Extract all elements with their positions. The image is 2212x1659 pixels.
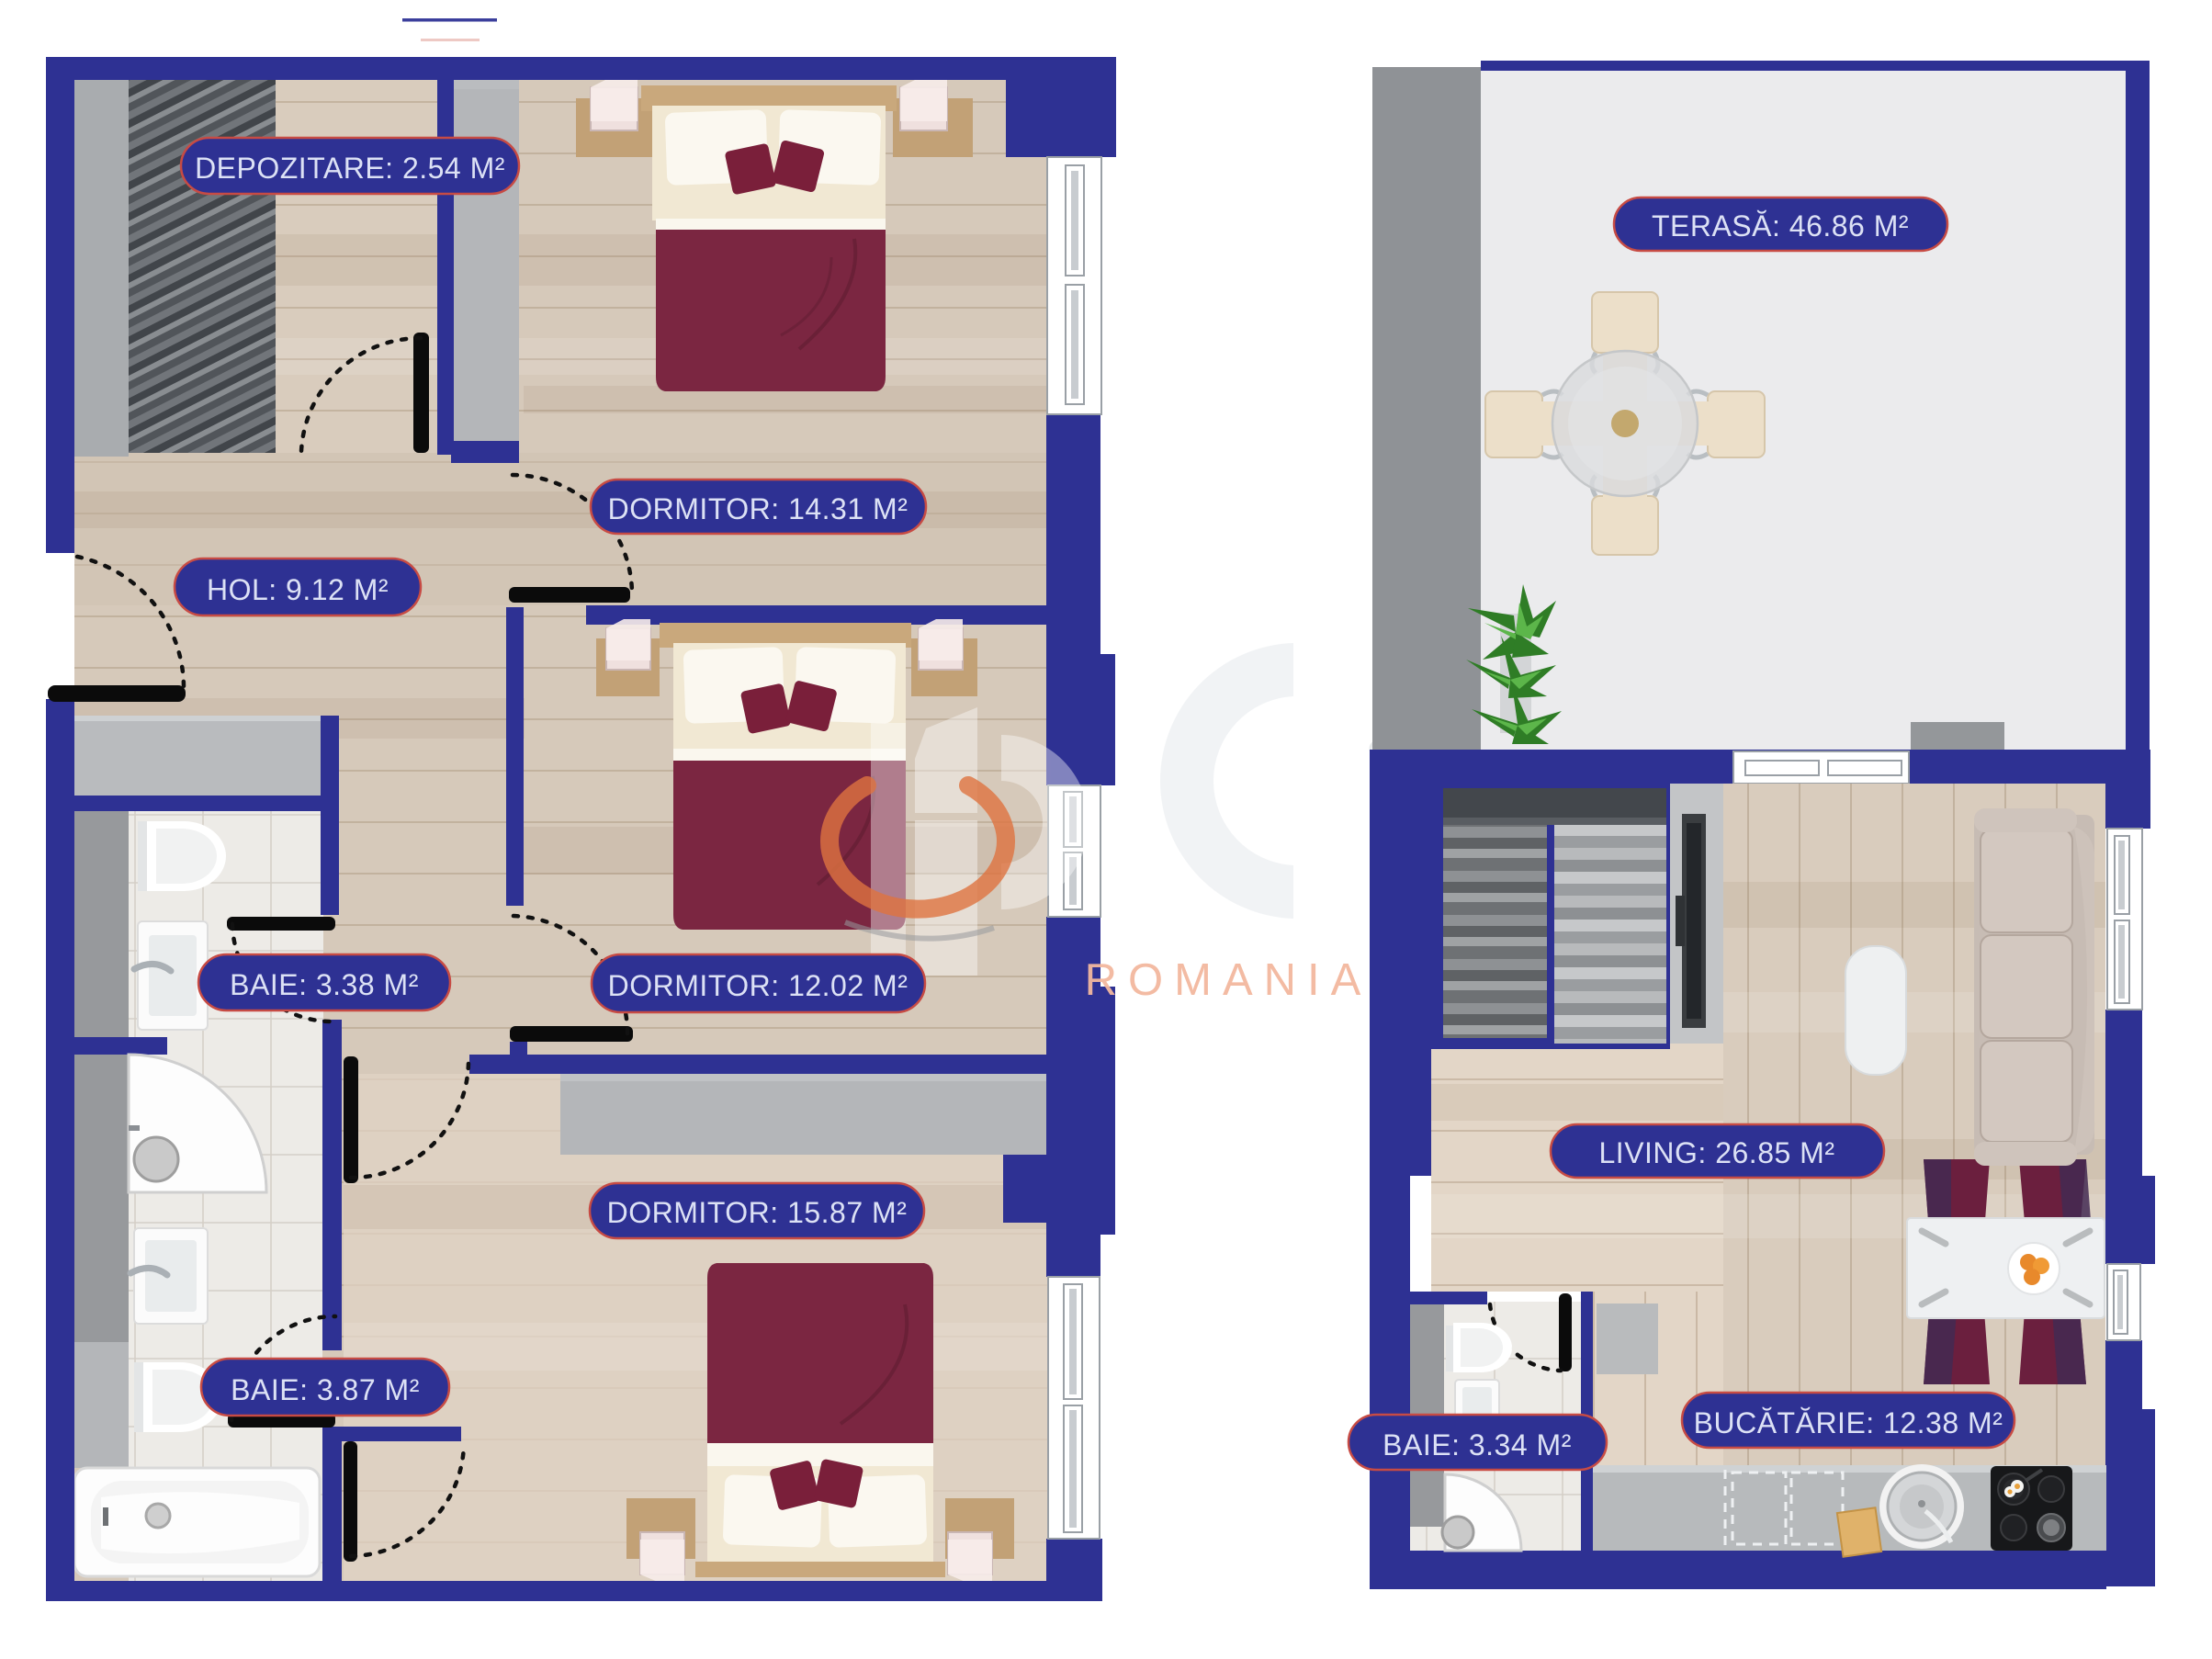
svg-text:BUCĂTĂRIE: 12.38 M²: BUCĂTĂRIE: 12.38 M²: [1694, 1406, 2003, 1439]
svg-text:BAIE: 3.87 M²: BAIE: 3.87 M²: [231, 1373, 420, 1406]
svg-text:DORMITOR: 12.02 M²: DORMITOR: 12.02 M²: [608, 969, 908, 1002]
svg-text:DEPOZITARE: 2.54 M²: DEPOZITARE: 2.54 M²: [195, 152, 505, 185]
svg-text:BAIE: 3.38 M²: BAIE: 3.38 M²: [230, 968, 419, 1001]
svg-text:ROMANIA: ROMANIA: [1085, 955, 1372, 1005]
svg-text:DORMITOR: 15.87 M²: DORMITOR: 15.87 M²: [607, 1196, 908, 1229]
svg-text:TERASĂ: 46.86 M²: TERASĂ: 46.86 M²: [1652, 209, 1909, 243]
svg-text:HOL: 9.12 M²: HOL: 9.12 M²: [207, 573, 389, 606]
svg-text:BAIE: 3.34 M²: BAIE: 3.34 M²: [1382, 1428, 1572, 1461]
svg-text:LIVING: 26.85 M²: LIVING: 26.85 M²: [1599, 1136, 1835, 1169]
svg-text:DORMITOR: 14.31 M²: DORMITOR: 14.31 M²: [608, 492, 908, 525]
